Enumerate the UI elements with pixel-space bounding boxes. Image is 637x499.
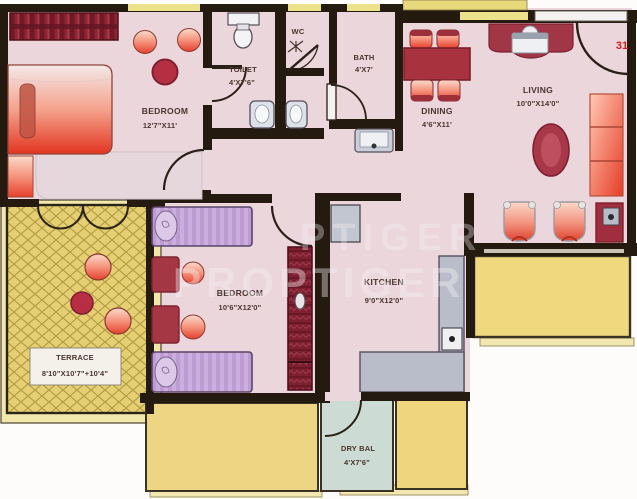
svg-text:4'X7'6": 4'X7'6" — [229, 78, 255, 87]
svg-text:DINING: DINING — [421, 106, 453, 116]
svg-text:PTIGER: PTIGER — [300, 217, 483, 259]
svg-text:4'6"X11': 4'6"X11' — [422, 120, 452, 129]
svg-text:31: 31 — [616, 40, 628, 52]
svg-text:10'0"X14'0": 10'0"X14'0" — [517, 99, 560, 108]
svg-text:BEDROOM: BEDROOM — [142, 106, 189, 116]
svg-text:DRY BAL: DRY BAL — [341, 444, 376, 453]
svg-text:LIVING: LIVING — [523, 85, 553, 95]
svg-text:4'X7'6": 4'X7'6" — [344, 458, 370, 467]
svg-text:PROPTIGER: PROPTIGER — [173, 259, 465, 306]
svg-text:4'X7': 4'X7' — [355, 65, 373, 74]
svg-text:12'7"X11': 12'7"X11' — [143, 121, 177, 130]
svg-text:WC: WC — [292, 27, 305, 36]
svg-text:BATH: BATH — [353, 53, 374, 62]
svg-text:TERRACE: TERRACE — [56, 353, 94, 362]
svg-text:TOILET: TOILET — [229, 65, 257, 74]
svg-text:8'10"X10'7"+10'4": 8'10"X10'7"+10'4" — [42, 369, 109, 378]
